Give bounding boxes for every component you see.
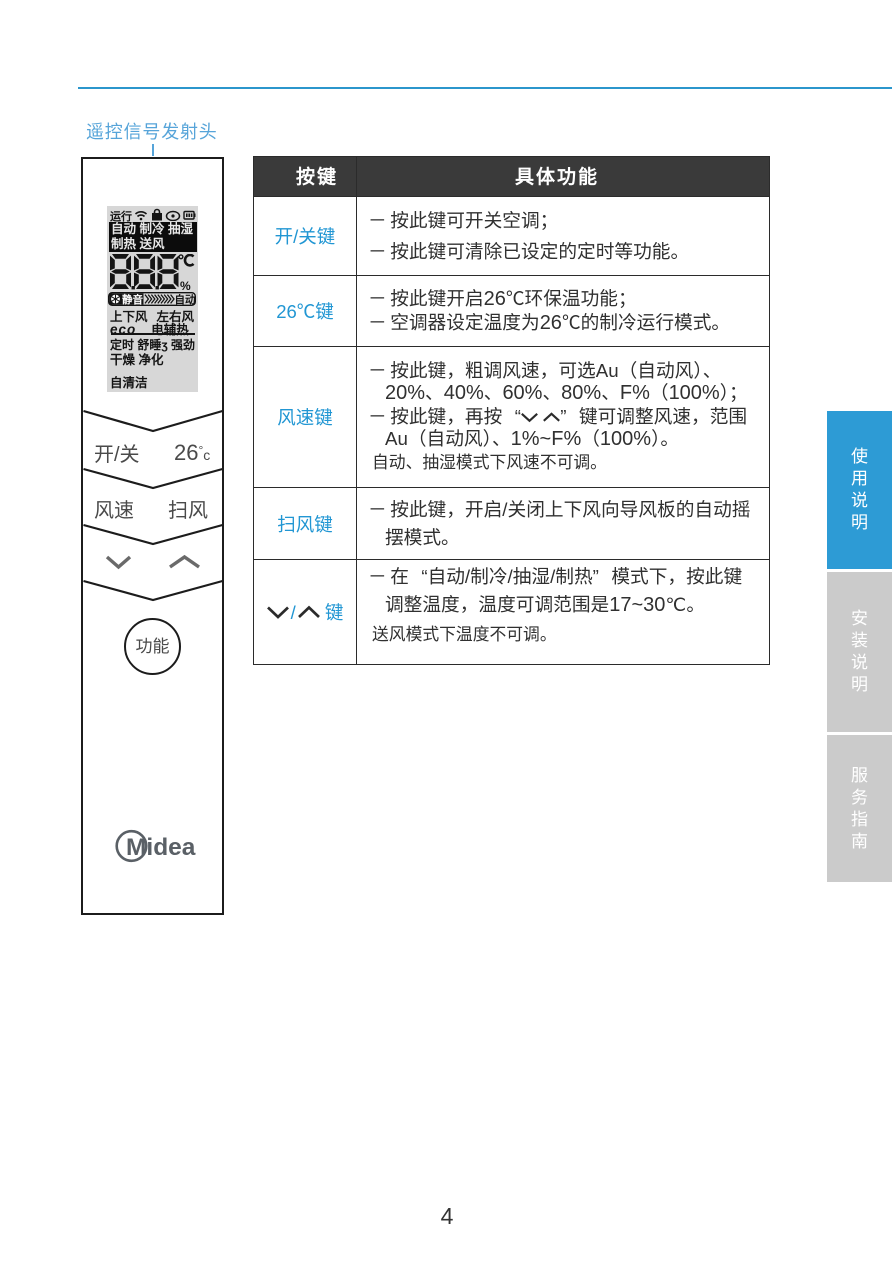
svg-text:Midea: Midea	[126, 834, 196, 861]
